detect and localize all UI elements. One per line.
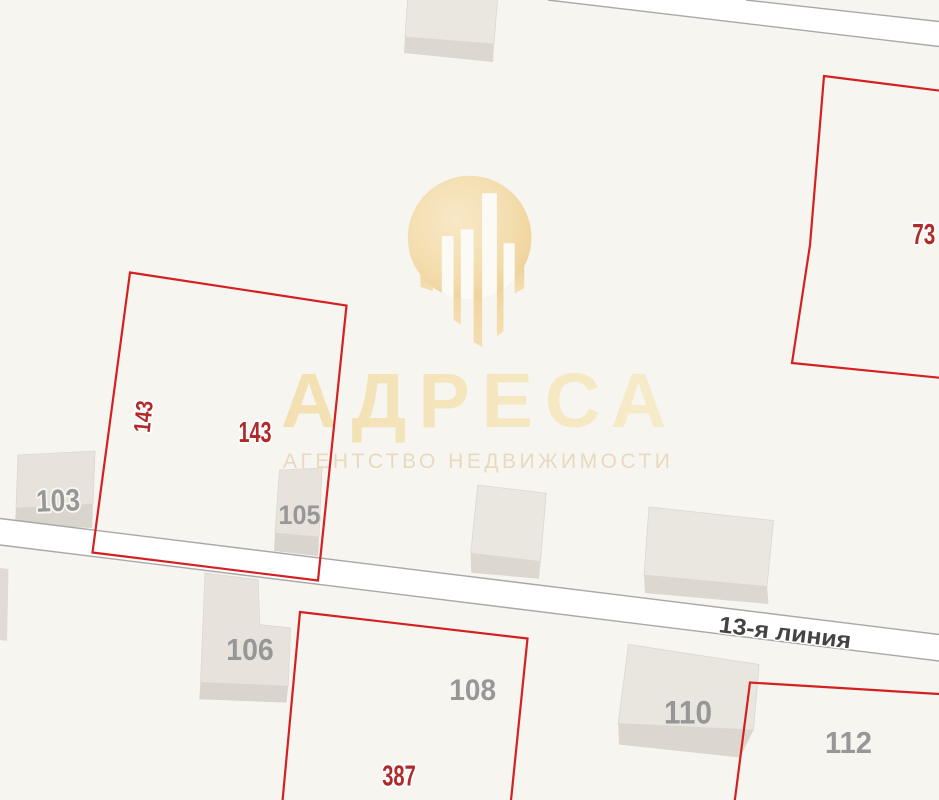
svg-text:106: 106 [226, 632, 274, 667]
svg-text:110: 110 [664, 695, 712, 731]
svg-text:АГЕНТСТВО НЕДВИЖИМОСТИ: АГЕНТСТВО НЕДВИЖИМОСТИ [283, 450, 673, 473]
svg-text:143: 143 [129, 399, 158, 434]
svg-text:73: 73 [912, 219, 935, 251]
svg-text:112: 112 [825, 725, 872, 760]
svg-text:143: 143 [239, 417, 272, 449]
svg-text:105: 105 [279, 500, 321, 530]
svg-text:103: 103 [35, 482, 80, 519]
svg-text:387: 387 [382, 761, 416, 793]
svg-text:108: 108 [449, 674, 496, 707]
